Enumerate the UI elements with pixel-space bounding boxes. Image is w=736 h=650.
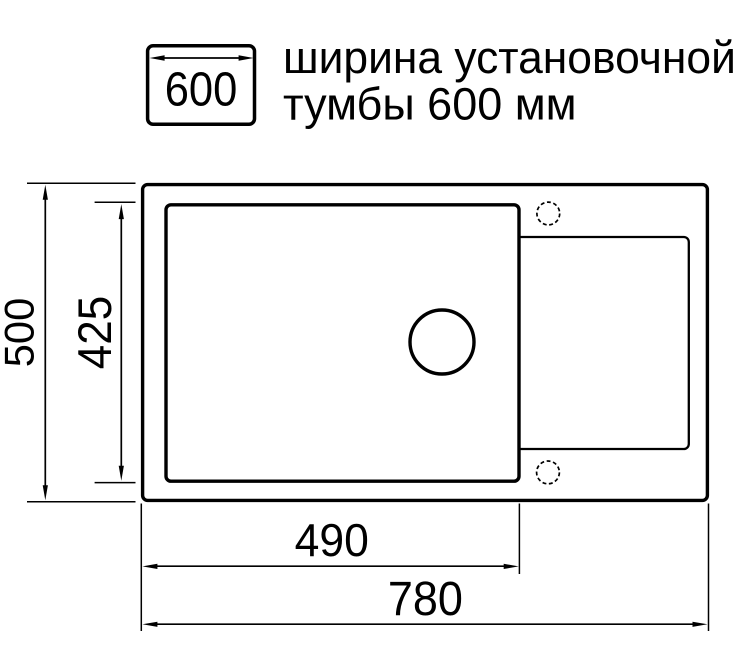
svg-text:490: 490: [295, 514, 369, 566]
svg-text:600: 600: [165, 61, 238, 116]
svg-text:500: 500: [0, 298, 43, 368]
svg-text:тумбы 600 мм: тумбы 600 мм: [283, 79, 577, 130]
svg-text:780: 780: [388, 572, 463, 626]
svg-text:425: 425: [69, 296, 122, 369]
svg-text:ширина установочной: ширина установочной: [283, 32, 736, 83]
